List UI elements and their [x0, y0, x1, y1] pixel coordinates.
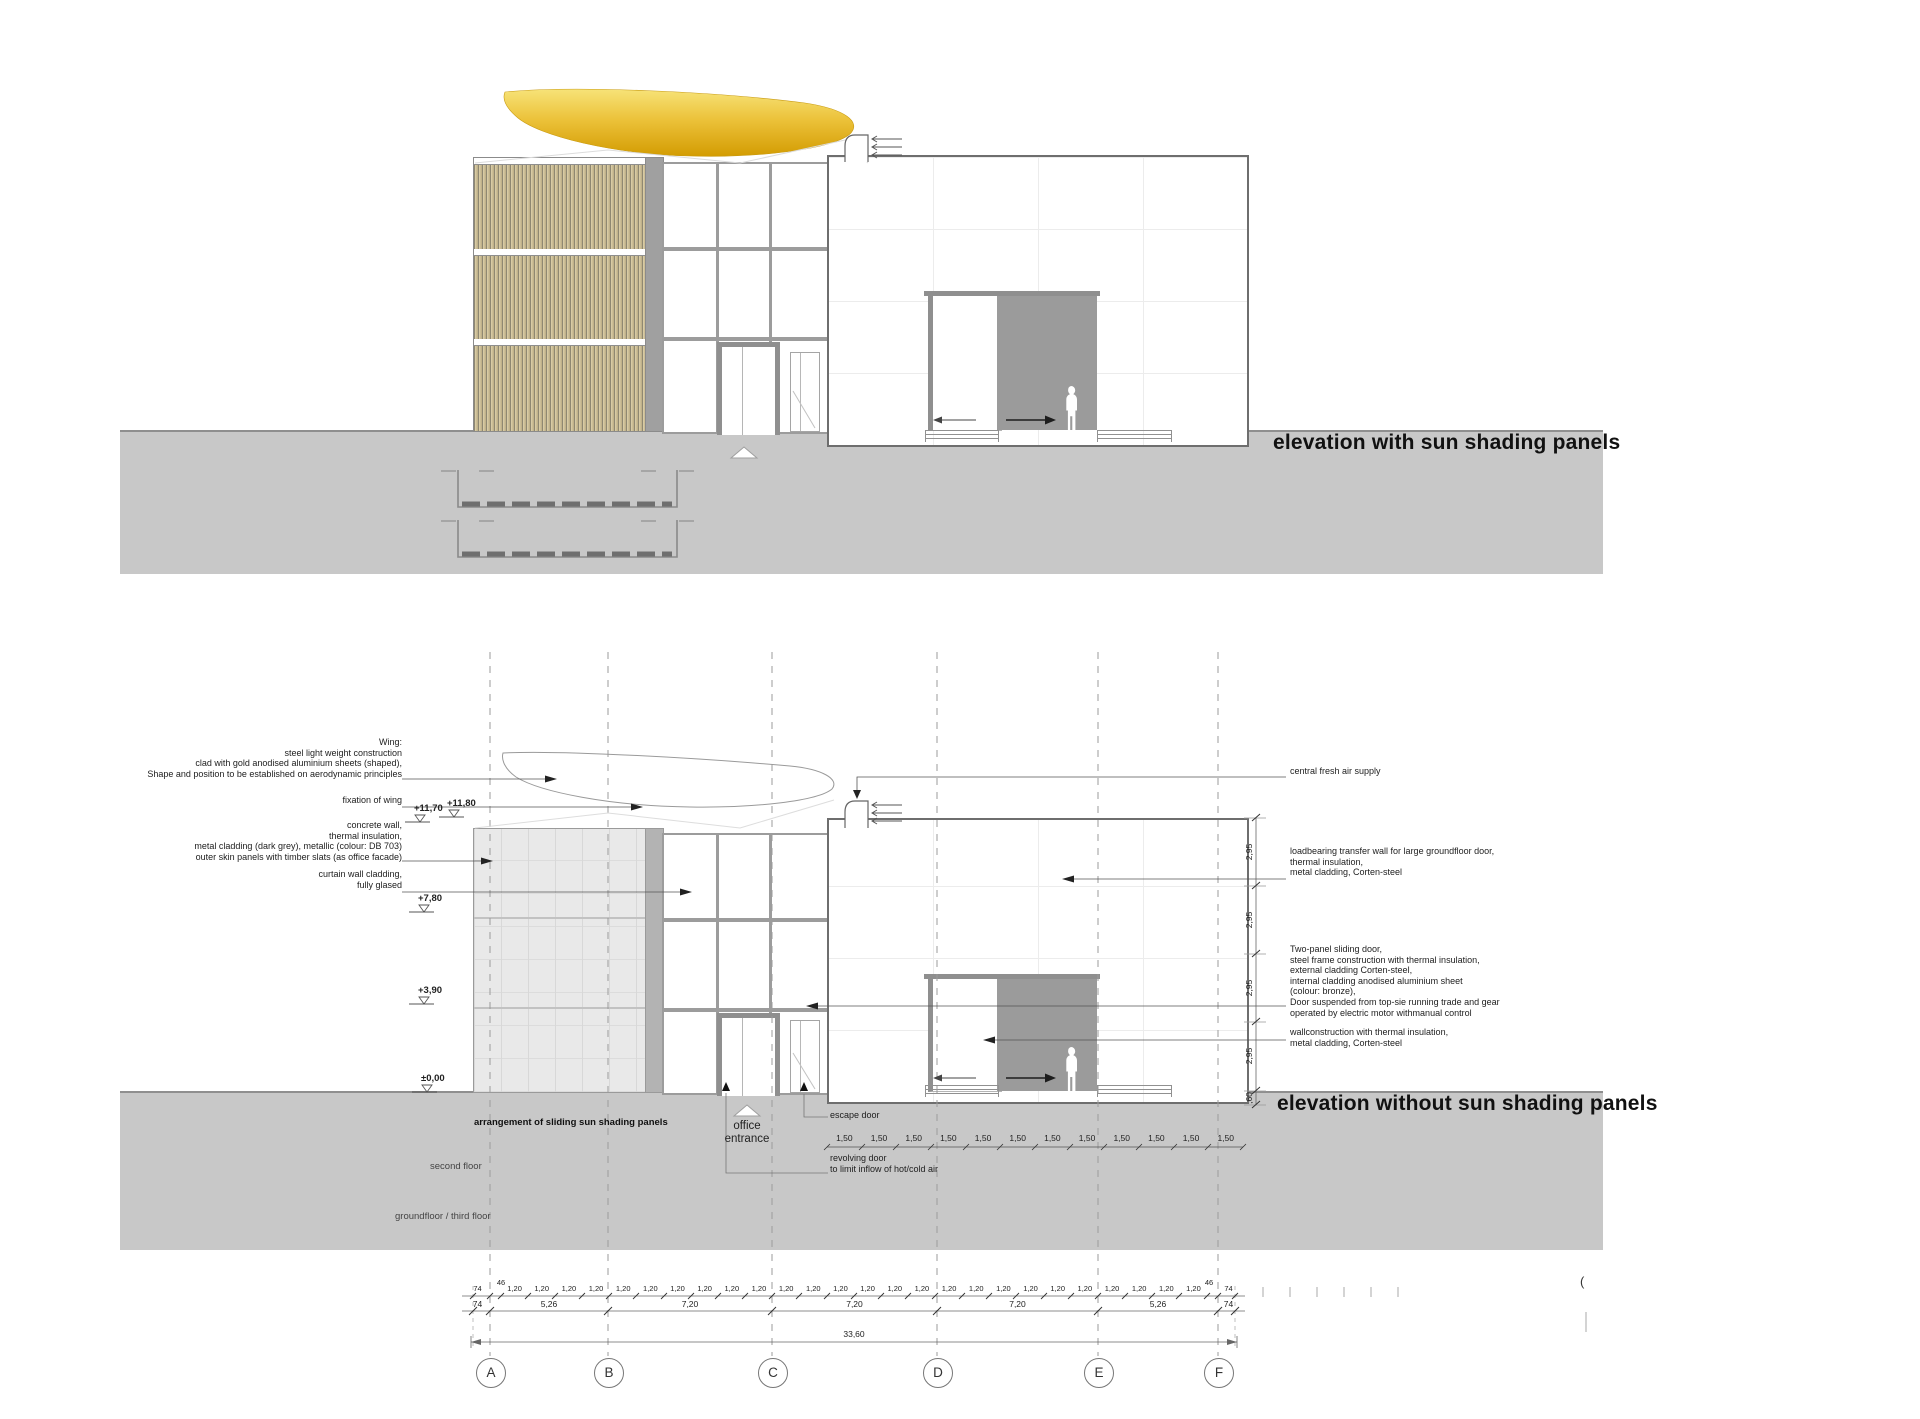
office-entrance-door-bottom [717, 1013, 780, 1096]
dim-720: 7,20 [772, 1299, 937, 1309]
label-escape-door: escape door [830, 1110, 880, 1120]
escape-door-bottom [790, 1020, 820, 1093]
door-track [1097, 430, 1172, 442]
level-markers [405, 810, 464, 1092]
slat-band [474, 164, 646, 249]
annotation-fresh-air: central fresh air supply [1290, 766, 1510, 777]
office-building-without-panels [473, 828, 647, 1093]
floor-line [474, 917, 646, 919]
dimension-labels-120: 1,201,201,201,201,201,201,201,201,201,20… [501, 1284, 1207, 1293]
dim-74: 74 [465, 1299, 490, 1309]
door-divider [800, 1021, 801, 1092]
annotation-concrete-wall: concrete wall,thermal insulation,metal c… [128, 820, 402, 862]
dim-720: 7,20 [937, 1299, 1098, 1309]
door-track [925, 430, 999, 442]
label-groundfloor: groundfloor / third floor [395, 1211, 491, 1222]
floor-line [474, 1007, 646, 1009]
door-track [1097, 1085, 1172, 1097]
level-3-90: +3,90 [418, 985, 442, 996]
annotation-wing: Wing:steel light weight constructionclad… [128, 737, 402, 779]
escape-door-top [790, 352, 820, 432]
gold-wing-icon [504, 89, 854, 156]
dim-60: ,60 [1244, 1078, 1258, 1118]
door-track [925, 1085, 999, 1097]
hall-door-opening [997, 296, 1097, 430]
annotation-curtain-wall: curtain wall cladding,fully glased [252, 869, 402, 890]
office-building-timber-slat-facade [473, 157, 647, 432]
door-divider [742, 347, 743, 435]
adjacent-drawing-ticks [1263, 1287, 1586, 1332]
transom [664, 247, 829, 251]
door-divider [800, 353, 801, 431]
annotation-loadbearing-wall: loadbearing transfer wall for large grou… [1290, 846, 1580, 878]
dim-720: 7,20 [608, 1299, 772, 1309]
slat-band [474, 345, 646, 431]
sliding-door-panel [928, 979, 1002, 1092]
drawing-sheet: elevation with sun shading panels elevat… [0, 0, 1920, 1419]
label-office-entrance: office entrance [713, 1120, 781, 1146]
adjacent-drawing-fragment: ( [1580, 1274, 1584, 1289]
level-11-70: +11,70 [414, 803, 443, 814]
dim-74: 74 [1216, 1284, 1241, 1293]
hall-door-opening [997, 979, 1097, 1091]
level-11-80: +11,80 [447, 798, 476, 809]
annotation-sliding-door: Two-panel sliding door,steel frame const… [1290, 944, 1590, 1018]
door-divider [742, 1018, 743, 1096]
annotation-wall-construction: wallconstruction with thermal insulation… [1290, 1027, 1580, 1048]
transom [664, 918, 829, 922]
dim-526: 5,26 [1098, 1299, 1218, 1309]
bottom-elevation-title: elevation without sun shading panels [1277, 1092, 1658, 1116]
office-entrance-door-top [717, 342, 780, 435]
top-elevation-title: elevation with sun shading panels [1273, 431, 1620, 455]
wing-outline-icon [503, 752, 834, 807]
sliding-door-panel [928, 296, 1002, 431]
slat-band [474, 255, 646, 339]
dimension-labels-150: 1,501,501,501,501,501,501,501,501,501,50… [827, 1133, 1243, 1143]
level-0-00: ±0,00 [421, 1073, 445, 1084]
dim-526: 5,26 [490, 1299, 608, 1309]
label-second-floor: second floor [430, 1161, 482, 1172]
transom [664, 1008, 829, 1012]
dim-total-3360: 33,60 [819, 1329, 889, 1339]
dim-74: 74 [465, 1284, 490, 1293]
dim-74: 74 [1216, 1299, 1241, 1309]
label-panel-arrangement: arrangement of sliding sun shading panel… [474, 1117, 668, 1128]
level-7-80: +7,80 [418, 893, 442, 904]
label-revolving-door: revolving doorto limit inflow of hot/col… [830, 1153, 938, 1174]
annotation-fixation: fixation of wing [252, 795, 402, 806]
transom [664, 337, 829, 341]
